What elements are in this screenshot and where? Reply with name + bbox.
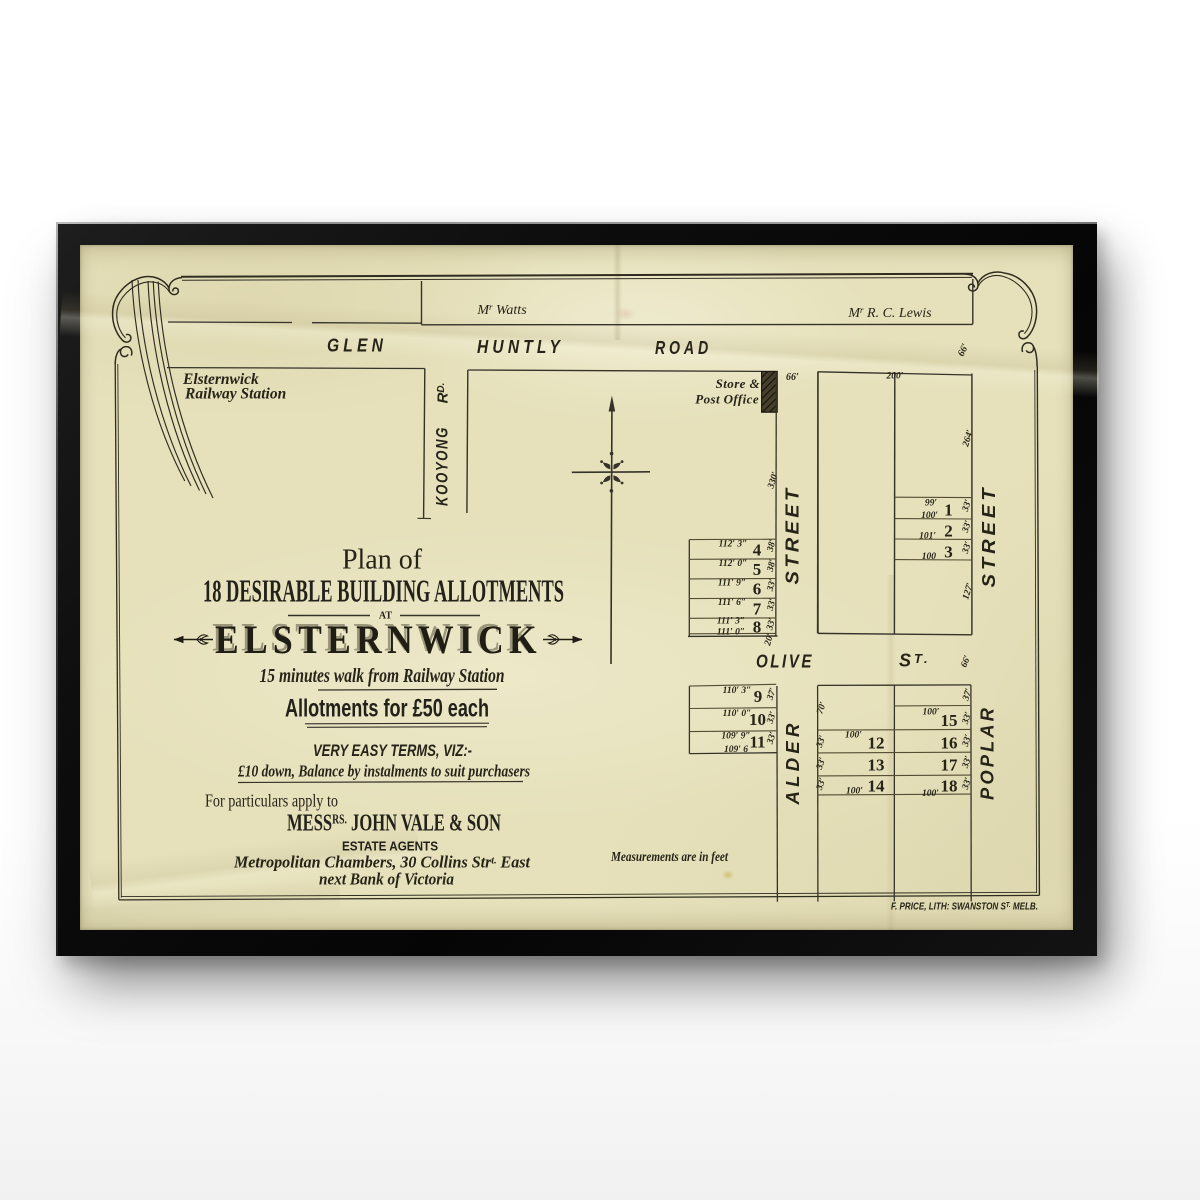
svg-text:HUNTLY: HUNTLY <box>477 336 564 357</box>
svg-text:GLEN: GLEN <box>327 335 387 356</box>
svg-text:1: 1 <box>944 501 953 520</box>
svg-text:Post Office: Post Office <box>695 392 759 407</box>
svg-text:11: 11 <box>749 733 765 752</box>
svg-text:10: 10 <box>749 710 766 729</box>
svg-text:15: 15 <box>941 711 958 730</box>
svg-text:110′ 3″: 110′ 3″ <box>723 686 752 696</box>
svg-text:ROAD: ROAD <box>655 337 712 358</box>
svg-text:9: 9 <box>754 687 763 706</box>
svg-text:33′: 33′ <box>815 734 829 750</box>
svg-text:100′: 100′ <box>846 787 863 797</box>
svg-text:MESSRS. JOHN VALE & SON: MESSRS. JOHN VALE & SON <box>287 811 501 837</box>
svg-text:33′: 33′ <box>961 776 975 792</box>
svg-text:100′: 100′ <box>923 708 940 718</box>
svg-text:110′ 0″: 110′ 0″ <box>723 709 752 719</box>
svg-text:14: 14 <box>868 777 886 796</box>
svg-text:ALDER: ALDER <box>783 720 803 806</box>
svg-text:F. PRICE, LITH: SWANSTON ST. M: F. PRICE, LITH: SWANSTON ST. MELB. <box>891 900 1038 913</box>
svg-text:330′: 330′ <box>766 470 781 490</box>
svg-text:33′: 33′ <box>765 578 778 594</box>
svg-text:6: 6 <box>753 580 762 599</box>
svg-text:8: 8 <box>753 618 762 637</box>
svg-text:3: 3 <box>944 543 953 562</box>
svg-text:KOOYONG: KOOYONG <box>434 426 452 506</box>
svg-text:13: 13 <box>868 756 885 775</box>
svg-text:38′: 38′ <box>765 538 778 554</box>
svg-text:100′: 100′ <box>922 789 939 799</box>
svg-text:£10 down, Balance by instalmen: £10 down, Balance by instalments to suit… <box>237 762 530 781</box>
svg-text:POPLAR: POPLAR <box>978 705 998 800</box>
svg-text:Mr R. C. Lewis: Mr R. C. Lewis <box>847 305 932 321</box>
svg-text:66′: 66′ <box>786 372 799 383</box>
svg-text:18 DESIRABLE BUILDING ALLOTMEN: 18 DESIRABLE BUILDING ALLOTMENTS <box>203 573 564 609</box>
svg-text:Mr Watts: Mr Watts <box>476 302 527 318</box>
svg-text:17: 17 <box>941 756 959 775</box>
svg-text:OLIVE: OLIVE <box>756 652 814 672</box>
svg-text:109′ 6: 109′ 6 <box>724 745 748 755</box>
svg-text:109′ 9″: 109′ 9″ <box>721 732 750 742</box>
svg-text:16: 16 <box>941 734 958 753</box>
svg-text:STREET: STREET <box>979 485 999 588</box>
svg-text:33′: 33′ <box>815 776 829 792</box>
svg-text:12: 12 <box>868 734 885 753</box>
svg-text:Measurements are in feet: Measurements are in feet <box>610 849 729 864</box>
svg-text:112′ 0″: 112′ 0″ <box>719 559 748 569</box>
svg-text:127′: 127′ <box>961 581 976 600</box>
svg-text:VERY EASY TERMS, VIZ:-: VERY EASY TERMS, VIZ:- <box>313 741 472 760</box>
svg-text:Store &: Store & <box>716 376 760 391</box>
svg-text:111′ 6″: 111′ 6″ <box>718 598 746 608</box>
svg-text:ESTATE AGENTS: ESTATE AGENTS <box>342 839 438 854</box>
svg-text:264′: 264′ <box>961 428 976 448</box>
svg-text:20′: 20′ <box>763 632 776 648</box>
svg-text:RD.: RD. <box>435 383 452 404</box>
svg-text:33′: 33′ <box>765 597 778 613</box>
svg-text:33′: 33′ <box>961 733 975 749</box>
svg-text:Railway Station: Railway Station <box>184 386 286 403</box>
svg-text:33′: 33′ <box>961 754 975 770</box>
svg-text:STREET: STREET <box>783 486 803 585</box>
svg-text:33′: 33′ <box>961 710 975 726</box>
svg-text:Allotments for £50 each: Allotments for £50 each <box>285 695 489 723</box>
svg-text:111′ 9″: 111′ 9″ <box>718 579 746 589</box>
svg-text:7: 7 <box>753 600 762 619</box>
svg-text:99′: 99′ <box>925 499 938 509</box>
svg-text:101′: 101′ <box>919 532 936 542</box>
svg-text:37′: 37′ <box>961 687 975 703</box>
svg-text:2: 2 <box>944 522 953 541</box>
svg-text:66′: 66′ <box>960 654 974 669</box>
svg-text:next Bank of Victoria: next Bank of Victoria <box>319 870 454 889</box>
svg-text:15 minutes walk from Railway S: 15 minutes walk from Railway Station <box>260 665 505 687</box>
svg-text:38′: 38′ <box>765 558 778 574</box>
svg-text:33′: 33′ <box>815 756 829 772</box>
svg-text:ELSTERNWICK: ELSTERNWICK <box>215 617 542 662</box>
svg-text:112′ 3″: 112′ 3″ <box>719 540 748 550</box>
svg-text:100′: 100′ <box>845 731 862 741</box>
svg-text:100′: 100′ <box>921 511 938 521</box>
svg-text:111′ 3″: 111′ 3″ <box>717 617 745 627</box>
svg-text:200′: 200′ <box>886 372 904 382</box>
svg-text:ST.: ST. <box>899 651 931 671</box>
svg-text:111′ 0″: 111′ 0″ <box>717 628 745 638</box>
svg-text:18: 18 <box>941 777 958 796</box>
svg-text:Plan of: Plan of <box>342 545 423 576</box>
svg-text:4: 4 <box>753 541 762 560</box>
svg-text:66′: 66′ <box>956 342 972 359</box>
svg-text:5: 5 <box>753 560 762 579</box>
svg-text:100: 100 <box>922 552 937 562</box>
svg-text:For particulars apply to: For particulars apply to <box>205 791 338 811</box>
